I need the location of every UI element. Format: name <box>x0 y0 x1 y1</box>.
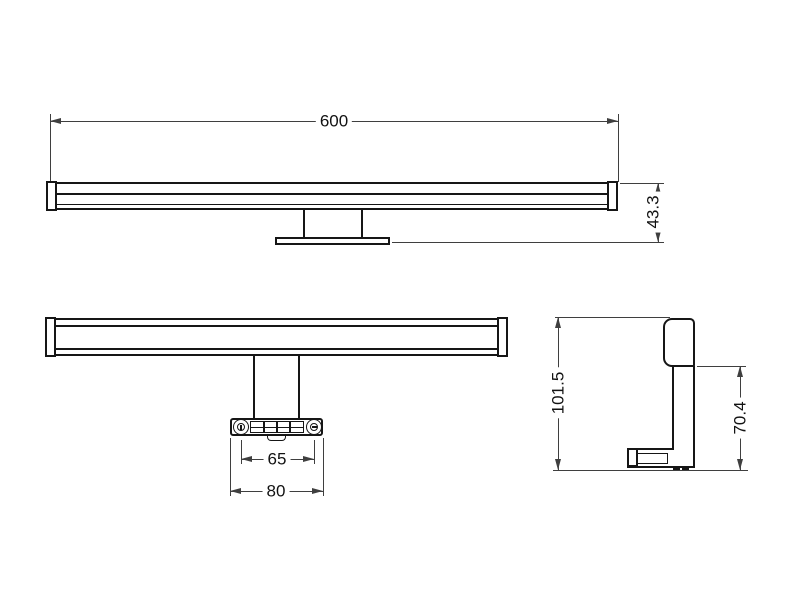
arrowhead-icon <box>241 456 252 462</box>
arrowhead-icon <box>737 366 743 377</box>
bracket-rib-line <box>263 421 265 433</box>
extension-line <box>553 470 748 471</box>
arrowhead-icon <box>303 456 314 462</box>
lamp-end-cap <box>45 317 56 357</box>
dim-label-width: 600 <box>316 112 352 131</box>
lamp-bar-outline <box>46 318 508 356</box>
foot-pad <box>682 468 689 471</box>
bracket-rib-line <box>276 421 278 433</box>
dim-label-bracket-height: 70.4 <box>731 397 750 438</box>
arrowhead-icon <box>555 317 561 328</box>
screw-slot <box>240 425 242 430</box>
extension-line <box>314 440 315 464</box>
dim-label-depth: 43.3 <box>644 191 663 232</box>
foot-slot <box>637 453 668 464</box>
dim-label-hole-spacing: 65 <box>264 450 291 469</box>
mount-stem-edge <box>253 356 255 418</box>
bracket-tab <box>267 436 286 441</box>
dim-label-bracket-width: 80 <box>263 482 290 501</box>
lamp-bar-edge-line <box>57 193 609 195</box>
arrowhead-icon <box>607 118 618 124</box>
extension-line <box>618 114 619 182</box>
extension-line <box>50 114 51 182</box>
wall-plate <box>275 237 390 245</box>
arrowhead-icon <box>230 488 241 494</box>
arm-edge <box>672 366 674 449</box>
arrowhead-icon <box>655 231 661 242</box>
extension-line <box>323 438 324 496</box>
technical-drawing-canvas: 600 43.3 <box>0 0 800 600</box>
lamp-bar-edge-line <box>56 348 498 350</box>
foot-pad <box>673 468 680 471</box>
lamp-end-cap <box>497 317 508 357</box>
bracket-rib-line <box>289 421 291 433</box>
lamp-head-profile <box>663 318 695 367</box>
arrowhead-icon <box>312 488 323 494</box>
arrowhead-icon <box>737 459 743 470</box>
arrowhead-icon <box>50 118 61 124</box>
lamp-end-cap <box>607 181 618 211</box>
mount-stem <box>303 210 363 237</box>
extension-line <box>392 242 664 243</box>
dim-label-total-height: 101.5 <box>549 368 568 419</box>
lamp-end-cap <box>46 181 57 211</box>
lamp-bar-edge-line <box>57 204 609 206</box>
mount-stem-edge <box>298 356 300 418</box>
arm-edge <box>693 366 695 467</box>
extension-line <box>555 317 670 318</box>
screw-slot <box>312 426 317 428</box>
lamp-bar-edge-line <box>56 325 498 327</box>
arrowhead-icon <box>555 459 561 470</box>
lamp-bar-outline <box>47 182 618 210</box>
